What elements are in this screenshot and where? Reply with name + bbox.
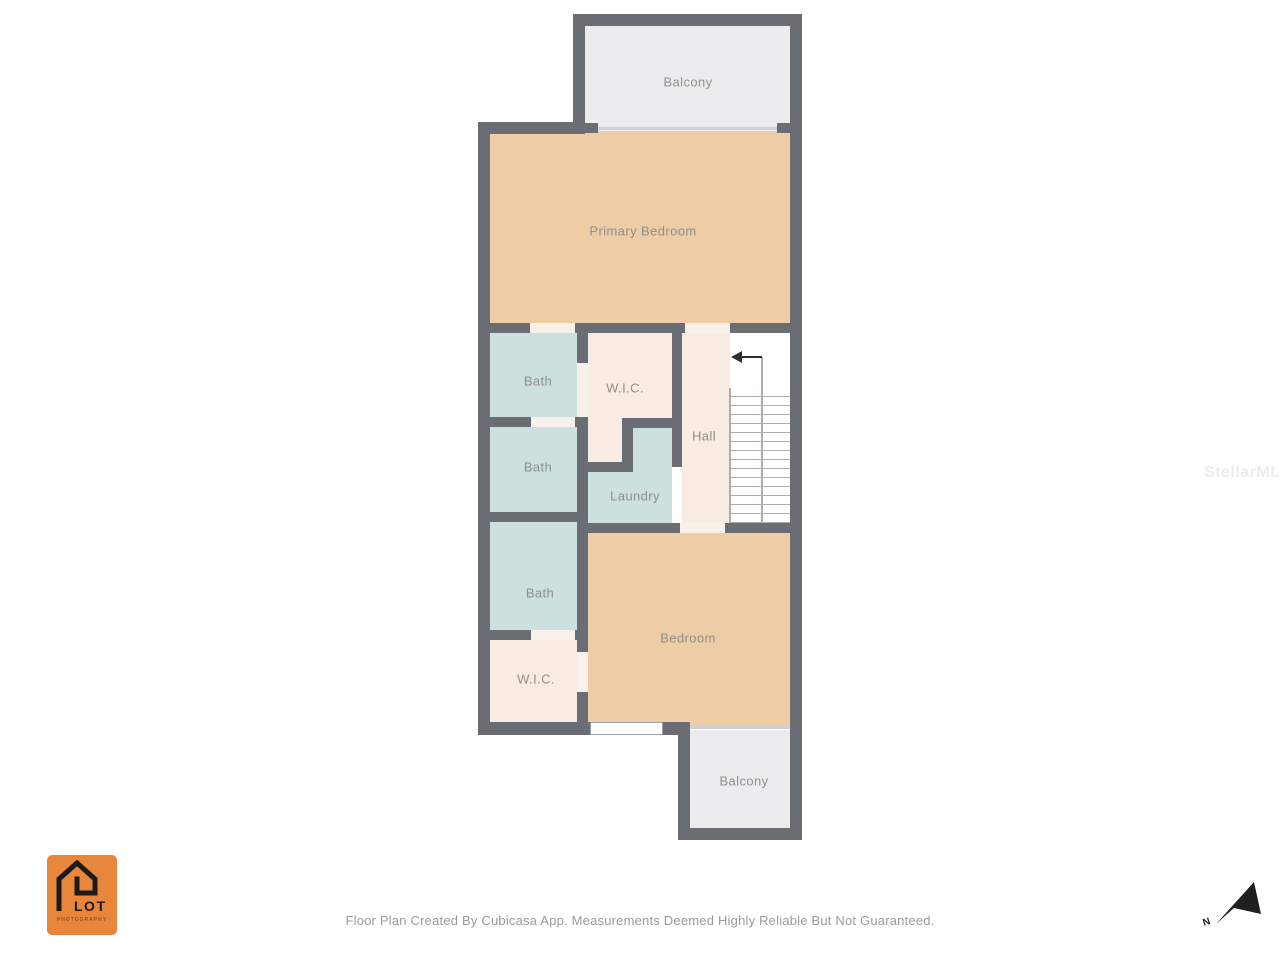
room-wic-1-label: W.I.C.	[606, 381, 644, 396]
wall	[478, 722, 590, 735]
wall	[483, 323, 530, 333]
wall	[672, 323, 682, 467]
wall	[730, 323, 790, 333]
room-laundry-fill-upper	[633, 428, 672, 472]
room-bath-2-label: Bath	[524, 460, 552, 475]
room-balcony-bottom-label: Balcony	[719, 774, 768, 789]
room-wic-2-label: W.I.C.	[517, 672, 555, 687]
wall	[577, 323, 588, 363]
room-primary-bedroom-label: Primary Bedroom	[589, 224, 696, 239]
room-wic-1-fill	[588, 333, 672, 418]
wall	[577, 692, 588, 733]
door-opening	[577, 652, 588, 692]
room-bedroom-label: Bedroom	[660, 631, 716, 646]
wall	[483, 630, 531, 640]
stair-direction-arrow-icon	[731, 351, 742, 363]
stair-left-edge	[729, 388, 731, 523]
wall	[573, 14, 585, 131]
room-bath-1-label: Bath	[524, 374, 552, 389]
wall	[777, 123, 790, 133]
room-wic-1-fill-notch	[588, 418, 622, 462]
door-opening	[531, 417, 575, 427]
mls-watermark: StellarMLS	[1204, 464, 1280, 482]
wall	[577, 417, 588, 652]
floor-plan: Balcony Primary Bedroom Bath W.I.C. Hall…	[0, 0, 1280, 960]
room-laundry-label: Laundry	[610, 489, 660, 504]
wall	[575, 323, 685, 333]
wall	[678, 828, 802, 840]
door-opening	[531, 630, 575, 640]
wall	[483, 417, 531, 427]
wall	[725, 523, 802, 533]
room-hall-label: Hall	[692, 429, 716, 444]
door-opening	[530, 323, 575, 333]
wall	[585, 123, 598, 133]
room-bath-3-label: Bath	[526, 586, 554, 601]
room-balcony-top-label: Balcony	[663, 75, 712, 90]
room-bath-3-fill	[490, 522, 578, 630]
window	[590, 722, 663, 735]
wall	[483, 512, 588, 522]
north-arrow-icon	[1198, 878, 1274, 940]
door-opening	[680, 523, 725, 533]
door-opening	[577, 363, 588, 417]
wall	[678, 725, 690, 840]
wall	[577, 462, 633, 472]
wall	[478, 122, 585, 134]
wall	[790, 14, 802, 840]
door-opening	[685, 323, 730, 333]
balcony-bottom-slider-line	[690, 726, 790, 729]
wall	[573, 14, 802, 26]
wall	[577, 523, 680, 533]
balcony-top-slider-line	[585, 127, 790, 130]
stair-center-line	[761, 357, 763, 523]
wall	[478, 122, 490, 733]
floorplan-disclaimer: Floor Plan Created By Cubicasa App. Meas…	[0, 913, 1280, 928]
logo-name-text: LOT	[74, 898, 107, 914]
stair-direction-line	[741, 356, 762, 358]
